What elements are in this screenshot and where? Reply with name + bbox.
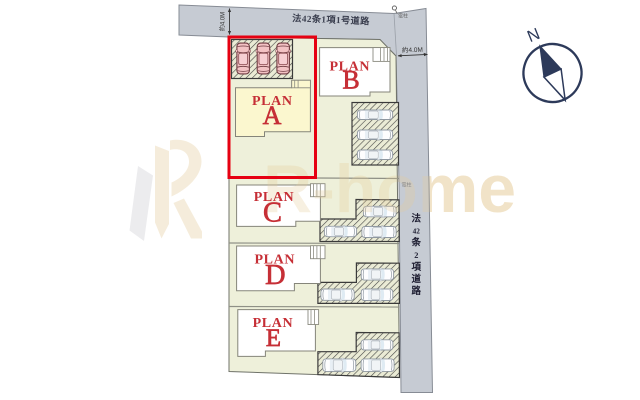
svg-text:条: 条 <box>411 237 422 249</box>
svg-text:約4.0M: 約4.0M <box>219 12 227 31</box>
svg-text:法: 法 <box>412 213 422 225</box>
svg-text:E: E <box>266 325 281 352</box>
svg-text:B: B <box>342 65 359 94</box>
svg-text:電柱: 電柱 <box>398 13 408 20</box>
svg-text:項: 項 <box>412 262 422 273</box>
svg-text:2: 2 <box>414 251 418 260</box>
svg-text:路: 路 <box>412 285 422 297</box>
svg-text:42: 42 <box>413 227 421 236</box>
svg-text:C: C <box>263 197 282 228</box>
svg-text:電柱: 電柱 <box>402 182 412 189</box>
svg-text:A: A <box>263 101 282 130</box>
svg-text:D: D <box>265 260 286 291</box>
svg-text:道: 道 <box>412 273 422 285</box>
